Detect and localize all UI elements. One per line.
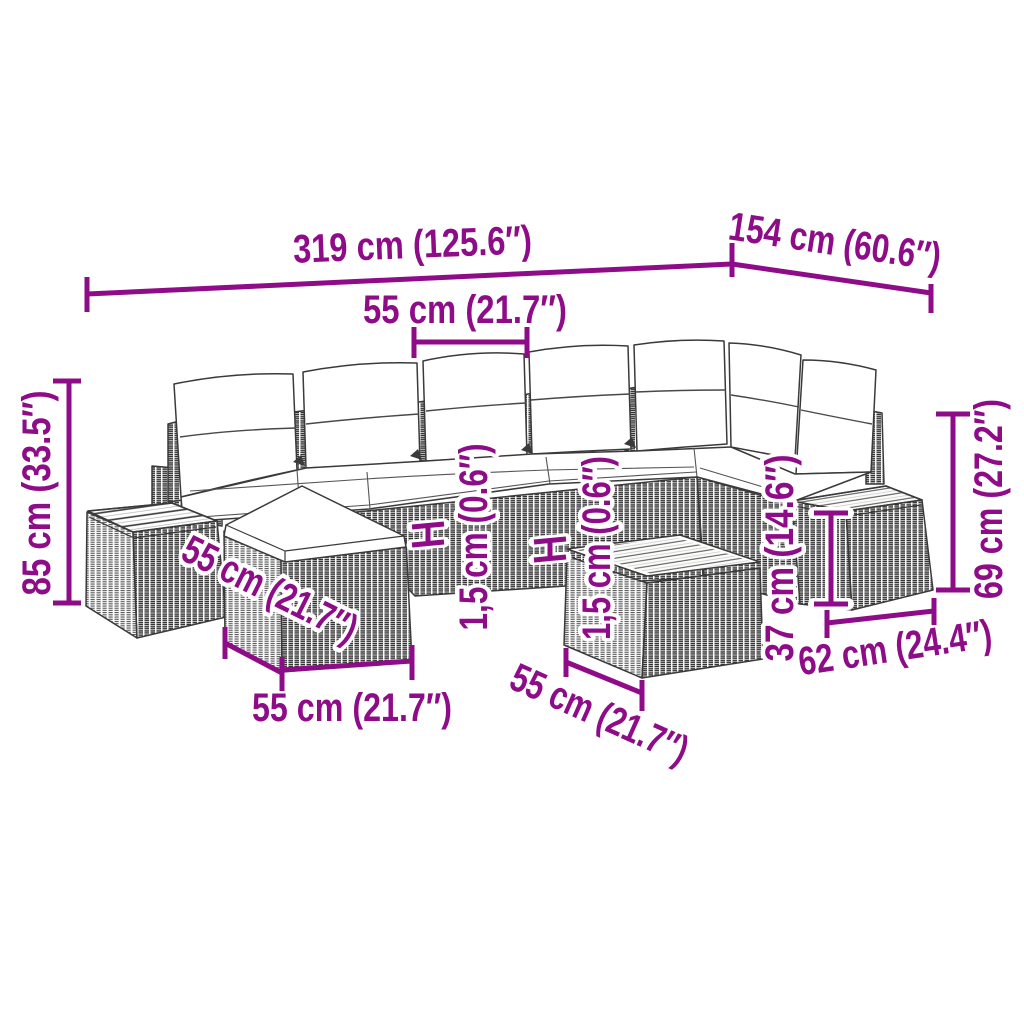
svg-text:85 cm (33.5″): 85 cm (33.5″) bbox=[15, 391, 59, 596]
svg-text:55 cm (21.7″): 55 cm (21.7″) bbox=[252, 686, 452, 730]
svg-text:1,5 cm (0.6″): 1,5 cm (0.6″) bbox=[575, 456, 619, 640]
svg-text:37 cm (14.6″): 37 cm (14.6″) bbox=[758, 455, 802, 662]
svg-text:1,5 cm (0.6″): 1,5 cm (0.6″) bbox=[452, 444, 496, 631]
svg-text:69 cm (27.2″): 69 cm (27.2″) bbox=[967, 399, 1011, 599]
svg-text:55 cm (21.7″): 55 cm (21.7″) bbox=[363, 288, 567, 332]
